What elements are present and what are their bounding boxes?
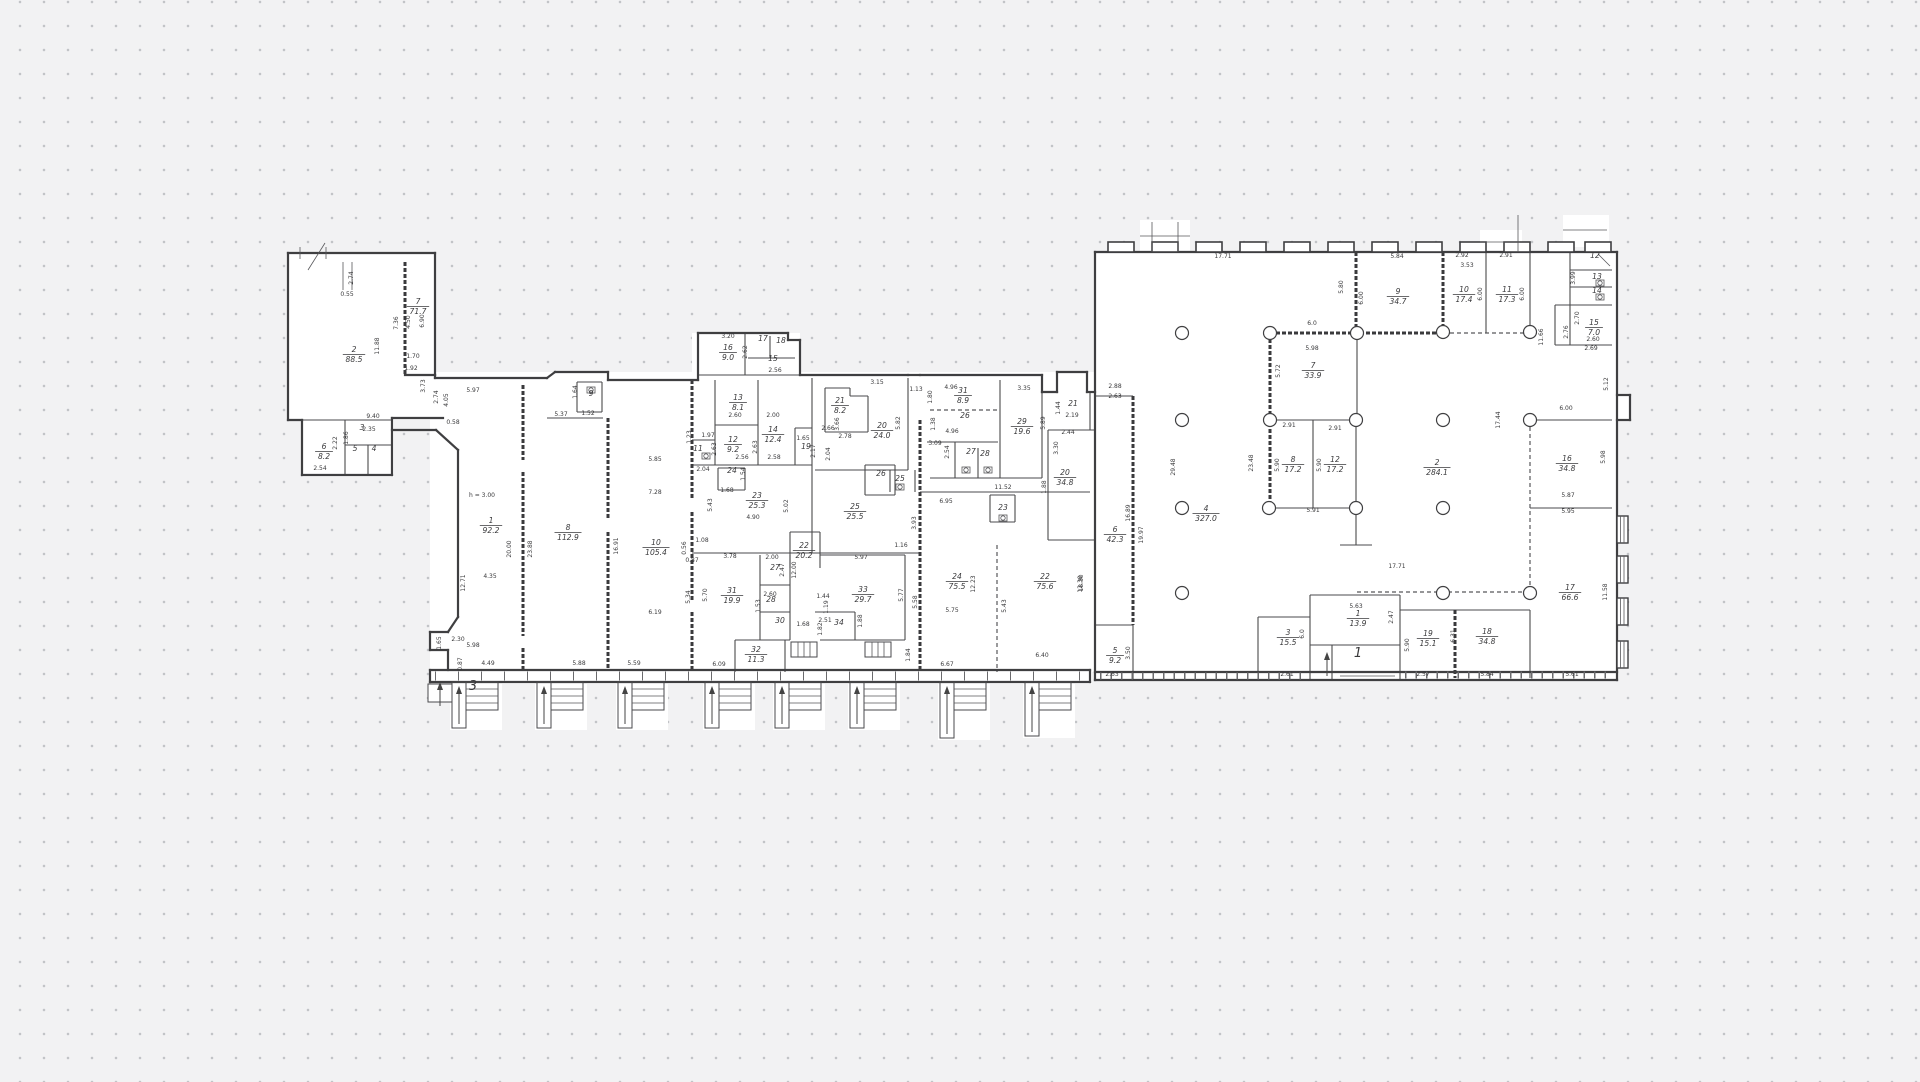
dimension-label: 5.98 bbox=[466, 642, 480, 649]
room-area: 9.2 bbox=[1109, 656, 1121, 665]
dimension-label: 1.82 bbox=[817, 622, 824, 636]
dimension-label: 4.90 bbox=[746, 514, 760, 521]
dimension-label: 17.71 bbox=[1388, 563, 1405, 570]
room-number: 16 bbox=[1562, 454, 1572, 463]
room-number: 31 bbox=[958, 386, 968, 395]
dimension-label: 1.13 bbox=[909, 386, 923, 393]
entrance-number: 3 bbox=[469, 679, 477, 694]
room-number: 22 bbox=[1040, 572, 1050, 581]
dimension-label: 2.04 bbox=[696, 466, 710, 473]
room-area: 17.4 bbox=[1456, 295, 1473, 304]
column bbox=[1350, 414, 1363, 427]
dimension-label: 5.84 bbox=[1480, 671, 1494, 678]
room-number: 15 bbox=[1589, 318, 1599, 327]
dimension-label: 3.99 bbox=[1570, 271, 1577, 285]
dimension-label: 1.86 bbox=[343, 431, 350, 445]
column bbox=[1264, 414, 1277, 427]
facade-pilaster bbox=[1504, 242, 1530, 252]
room-area: 42.3 bbox=[1107, 535, 1124, 544]
column bbox=[1437, 587, 1450, 600]
dimension-label: 1.65 bbox=[796, 435, 810, 442]
room-number: 18 bbox=[776, 336, 786, 345]
room-area: 34.8 bbox=[1559, 464, 1576, 473]
room-number: 10 bbox=[651, 538, 661, 547]
room-number: 25 bbox=[895, 474, 905, 483]
dimension-label: 4.96 bbox=[945, 428, 959, 435]
dimension-label: 1.38 bbox=[930, 417, 937, 431]
dimension-label: 1.54 bbox=[740, 467, 747, 481]
facade-pilaster bbox=[1196, 242, 1222, 252]
room-number: 6 bbox=[1113, 525, 1118, 534]
room-number: 5 bbox=[353, 444, 358, 453]
dimension-label: 1.68 bbox=[720, 487, 734, 494]
dimension-label: 2.19 bbox=[1065, 412, 1079, 419]
room-area: 8.2 bbox=[834, 406, 846, 415]
column bbox=[1524, 326, 1537, 339]
room-area: 34.7 bbox=[1390, 297, 1407, 306]
room-area: 19.9 bbox=[724, 596, 741, 605]
dimension-label: 16.89 bbox=[1125, 504, 1132, 521]
dimension-label: 20.00 bbox=[506, 540, 513, 557]
dimension-label: 2.57 bbox=[1416, 671, 1430, 678]
dimension-label: 5.82 bbox=[895, 416, 902, 430]
dimension-label: 3.20 bbox=[721, 333, 735, 340]
room-area: 75.5 bbox=[949, 582, 966, 591]
room-number: 19 bbox=[1423, 629, 1433, 638]
dimension-label: 5.43 bbox=[1001, 599, 1008, 613]
dimension-label: 5.43 bbox=[707, 498, 714, 512]
dimension-label: 2.66 bbox=[821, 425, 835, 432]
room-area: 284.1 bbox=[1426, 468, 1448, 477]
dimension-label: 18.30 bbox=[1078, 574, 1085, 591]
room-number: 12 bbox=[728, 435, 738, 444]
room-number: 9 bbox=[589, 389, 594, 398]
room-area: 29.7 bbox=[855, 595, 872, 604]
window-bay bbox=[1617, 516, 1628, 543]
stair-slab bbox=[848, 680, 900, 730]
dimension-label: 4.96 bbox=[944, 384, 958, 391]
room-number: 8 bbox=[1291, 455, 1296, 464]
dimension-label: 6.40 bbox=[1035, 652, 1049, 659]
stair-slab bbox=[535, 680, 587, 730]
dimension-label: 2.74 bbox=[433, 390, 440, 404]
facade-pilaster bbox=[1460, 242, 1486, 252]
dimension-label: 6.00 bbox=[1519, 287, 1526, 301]
dimension-label: 2.00 bbox=[765, 554, 779, 561]
facade-pilaster bbox=[1372, 242, 1398, 252]
dimension-label: 4.50 bbox=[405, 315, 412, 329]
room-number: 5 bbox=[1113, 646, 1118, 655]
room-area: 15.1 bbox=[1420, 639, 1437, 648]
facade-pilaster bbox=[1108, 242, 1134, 252]
room-area: 9.2 bbox=[727, 445, 739, 454]
dimension-label: 7.28 bbox=[648, 489, 662, 496]
dimension-label: 5.88 bbox=[572, 660, 586, 667]
dimension-label: 5.90 bbox=[1404, 638, 1411, 652]
drawing-canvas[interactable]: 0.552.747.364.506.901.701.9211.883.735.9… bbox=[0, 0, 1920, 1078]
dimension-label: 0.55 bbox=[340, 291, 354, 298]
dimension-label: 2.92 bbox=[1455, 252, 1469, 259]
dimension-label: 3.15 bbox=[870, 379, 884, 386]
dimension-label: 1.97 bbox=[701, 432, 715, 439]
room-number: 31 bbox=[727, 586, 737, 595]
dimension-label: 5.70 bbox=[702, 588, 709, 602]
room-number: 9 bbox=[1396, 287, 1401, 296]
dimension-label: 3.30 bbox=[1053, 441, 1060, 455]
room-number: 34 bbox=[834, 618, 844, 627]
dimension-label: 3.35 bbox=[1017, 385, 1031, 392]
room-number: 17 bbox=[1565, 583, 1575, 592]
room-number: 2 bbox=[352, 345, 357, 354]
window-bay bbox=[1617, 598, 1628, 625]
column bbox=[1437, 502, 1450, 515]
dimension-label: 2.04 bbox=[825, 447, 832, 461]
dimension-label: 2.63 bbox=[752, 440, 759, 454]
room-number: 27 bbox=[966, 447, 976, 456]
room-number: 12 bbox=[1590, 251, 1600, 260]
dimension-label: 2.60 bbox=[1586, 336, 1600, 343]
room-number: 10 bbox=[1459, 285, 1469, 294]
room-number: 13 bbox=[1592, 272, 1602, 281]
dimension-label: 2.69 bbox=[1584, 345, 1598, 352]
room-area: 19.6 bbox=[1014, 427, 1031, 436]
dimension-label: 3.53 bbox=[1460, 262, 1474, 269]
dimension-label: 1.44 bbox=[1055, 401, 1062, 415]
room-area: 17.2 bbox=[1327, 465, 1344, 474]
room-area: 13.9 bbox=[1350, 619, 1367, 628]
dimension-label: 6.67 bbox=[940, 661, 954, 668]
dimension-label: 3.50 bbox=[1125, 646, 1132, 660]
dimension-label: 1.44 bbox=[816, 593, 830, 600]
room-number: 21 bbox=[835, 396, 845, 405]
column bbox=[1524, 414, 1537, 427]
dimension-label: 2.63 bbox=[1105, 671, 1119, 678]
room-number: 13 bbox=[733, 393, 743, 402]
dimension-label: 3.93 bbox=[911, 516, 918, 530]
room-number: 6 bbox=[322, 442, 327, 451]
room-area: 71.7 bbox=[410, 307, 427, 316]
column bbox=[1263, 502, 1276, 515]
dimension-label: 0.87 bbox=[685, 557, 699, 564]
room-area: 92.2 bbox=[483, 526, 500, 535]
room-area: 8.9 bbox=[957, 396, 969, 405]
dimension-label: 2.54 bbox=[944, 445, 951, 459]
room-area: 34.8 bbox=[1479, 637, 1496, 646]
dimension-label: 0.87 bbox=[457, 657, 464, 671]
dimension-label: 12.71 bbox=[460, 574, 467, 591]
room-area: 24.0 bbox=[874, 431, 891, 440]
facade-pilaster bbox=[1548, 242, 1574, 252]
dimension-label: 11.88 bbox=[374, 337, 381, 354]
dimension-label: 5.91 bbox=[1306, 507, 1320, 514]
dimension-label: 1.88 bbox=[857, 614, 864, 628]
dimension-label: 12.23 bbox=[970, 575, 977, 592]
stair-slab bbox=[773, 680, 825, 730]
room-number: 11 bbox=[693, 444, 703, 453]
dimension-label: 5.84 bbox=[1390, 253, 1404, 260]
room-area: 20.2 bbox=[796, 551, 813, 560]
room-number: 18 bbox=[1482, 627, 1492, 636]
dimension-label: 6.95 bbox=[939, 498, 953, 505]
room-number: 4 bbox=[1204, 504, 1209, 513]
room-number: 1 bbox=[489, 516, 494, 525]
dimension-label: 2.47 bbox=[779, 563, 786, 577]
room-number: 8 bbox=[566, 523, 571, 532]
dimension-label: 3.73 bbox=[420, 379, 427, 393]
column bbox=[1176, 502, 1189, 515]
dimension-label: 5.34 bbox=[685, 590, 692, 604]
room-number: 1 bbox=[1356, 609, 1361, 618]
dimension-label: 5.12 bbox=[1603, 377, 1610, 391]
dimension-label: 2.47 bbox=[1388, 610, 1395, 624]
dimension-label: 11.58 bbox=[1602, 583, 1609, 600]
room-number: 2 bbox=[1435, 458, 1440, 467]
building-footprint bbox=[1617, 395, 1630, 420]
room-area: 25.5 bbox=[847, 512, 864, 521]
room-number: 32 bbox=[751, 645, 761, 654]
room-number: 14 bbox=[768, 425, 778, 434]
room-area: 7.0 bbox=[1588, 328, 1600, 337]
dimension-label: 2.88 bbox=[1108, 383, 1122, 390]
column bbox=[1176, 414, 1189, 427]
room-area: 8.2 bbox=[318, 452, 330, 461]
dimension-label: 3.66 bbox=[834, 417, 841, 431]
floor-plan-svg: 0.552.747.364.506.901.701.9211.883.735.9… bbox=[0, 0, 1920, 1078]
dimension-label: 16.91 bbox=[613, 537, 620, 554]
dimension-label: 6.09 bbox=[712, 661, 726, 668]
dimension-label: 5.85 bbox=[648, 456, 662, 463]
dimension-label: 5.02 bbox=[783, 499, 790, 513]
dimension-label: 23.48 bbox=[1248, 454, 1255, 471]
dimension-label: 2.91 bbox=[1282, 422, 1296, 429]
dimension-label: 6.90 bbox=[419, 314, 426, 328]
dimension-label: 5.59 bbox=[627, 660, 641, 667]
dimension-label: 5.98 bbox=[1600, 450, 1607, 464]
column bbox=[1524, 587, 1537, 600]
dimension-label: 1.65 bbox=[436, 636, 443, 650]
room-number: 27 bbox=[770, 563, 780, 572]
room-number: 17 bbox=[758, 334, 768, 343]
dimension-label: 6.0 bbox=[1307, 320, 1317, 327]
room-number: 12 bbox=[1330, 455, 1340, 464]
dimension-label: 11.66 bbox=[1538, 328, 1545, 345]
dimension-label: 2.30 bbox=[451, 636, 465, 643]
dimension-label: 29.48 bbox=[1170, 458, 1177, 475]
room-number: 20 bbox=[877, 421, 887, 430]
room-number: 24 bbox=[952, 572, 962, 581]
room-number: 20 bbox=[1060, 468, 1070, 477]
dimension-label: 1.88 bbox=[1041, 480, 1048, 494]
dimension-label: 2.17 bbox=[810, 444, 817, 458]
dimension-label: 12.00 bbox=[791, 561, 798, 578]
room-area: 33.9 bbox=[1305, 371, 1322, 380]
dimension-label: 2.00 bbox=[766, 412, 780, 419]
room-number: 29 bbox=[1017, 417, 1027, 426]
dimension-label: 0.56 bbox=[681, 541, 688, 555]
dimension-label: 5.90 bbox=[1316, 458, 1323, 472]
room-area: 9.0 bbox=[722, 353, 734, 362]
dimension-label: 1.92 bbox=[404, 365, 418, 372]
dimension-label: 5.61 bbox=[1565, 671, 1579, 678]
dimension-label: 2.70 bbox=[1574, 311, 1581, 325]
dimension-label: 2.61 bbox=[1280, 671, 1294, 678]
dimension-label: 6.00 bbox=[1559, 405, 1573, 412]
entrance-number: 1 bbox=[1354, 646, 1362, 661]
dimension-label: 1.68 bbox=[796, 621, 810, 628]
room-number: 4 bbox=[372, 444, 377, 453]
dimension-label: 2.76 bbox=[1563, 325, 1570, 339]
room-area: 25.3 bbox=[749, 501, 766, 510]
dimension-label: 5.72 bbox=[1275, 364, 1282, 378]
dimension-label: 19.97 bbox=[1138, 526, 1145, 543]
dimension-label: 2.60 bbox=[728, 412, 742, 419]
dimension-label: 3.09 bbox=[928, 440, 942, 447]
dimension-label: 23.88 bbox=[527, 540, 534, 557]
dimension-label: 6.31 bbox=[1450, 629, 1457, 643]
room-number: 3 bbox=[1286, 628, 1291, 637]
facade-pilaster bbox=[1284, 242, 1310, 252]
room-number: 23 bbox=[752, 491, 762, 500]
dimension-label: 2.62 bbox=[742, 345, 749, 359]
dimension-label: 11.52 bbox=[994, 484, 1011, 491]
window-bay bbox=[1617, 556, 1628, 583]
stair-slab bbox=[616, 680, 668, 730]
dimension-label: 5.80 bbox=[1338, 280, 1345, 294]
dimension-label: 6.00 bbox=[1477, 287, 1484, 301]
dimension-label: 4.05 bbox=[443, 393, 450, 407]
column bbox=[1437, 326, 1450, 339]
dimension-label: 5.58 bbox=[912, 595, 919, 609]
room-area: 8.1 bbox=[732, 403, 744, 412]
dimension-label: 5.98 bbox=[1305, 345, 1319, 352]
window-bay bbox=[1617, 641, 1628, 668]
room-number: 3 bbox=[360, 423, 365, 432]
room-number: 26 bbox=[960, 411, 970, 420]
dimension-label: 2.91 bbox=[1328, 425, 1342, 432]
dimension-label: 4.49 bbox=[481, 660, 495, 667]
room-area: 112.9 bbox=[557, 533, 579, 542]
room-number: 24 bbox=[727, 466, 737, 475]
dimension-label: 5.95 bbox=[1561, 508, 1575, 515]
room-area: 105.4 bbox=[645, 548, 667, 557]
dimension-label: 1.19 bbox=[823, 600, 830, 614]
dimension-label: 2.58 bbox=[767, 454, 781, 461]
room-number: 11 bbox=[1502, 285, 1512, 294]
room-number: 28 bbox=[766, 595, 776, 604]
dimension-label: 0.58 bbox=[446, 419, 460, 426]
column bbox=[1437, 414, 1450, 427]
room-area: 12.4 bbox=[765, 435, 782, 444]
room-number: 19 bbox=[801, 442, 811, 451]
stair-slab bbox=[703, 680, 755, 730]
facade-pilaster bbox=[1152, 242, 1178, 252]
dimension-label: 5.87 bbox=[1561, 492, 1575, 499]
column bbox=[1350, 502, 1363, 515]
dimension-label: 2.63 bbox=[1108, 393, 1122, 400]
room-area: 327.0 bbox=[1195, 514, 1217, 523]
dimension-label: 1.08 bbox=[695, 537, 709, 544]
dimension-label: 2.44 bbox=[1061, 429, 1075, 436]
dimension-label: 1.64 bbox=[572, 385, 579, 399]
dimension-label: 1.16 bbox=[894, 542, 908, 549]
room-number: 21 bbox=[1068, 399, 1078, 408]
dimension-label: 1.53 bbox=[755, 599, 762, 613]
room-number: 14 bbox=[1592, 286, 1602, 295]
dimension-label: 2.54 bbox=[313, 465, 327, 472]
column bbox=[1176, 587, 1189, 600]
dimension-label: 5.75 bbox=[945, 607, 959, 614]
room-area: 11.3 bbox=[748, 655, 765, 664]
dimension-label: 2.91 bbox=[1499, 252, 1513, 259]
room-area: 88.5 bbox=[346, 355, 363, 364]
room-area: 66.6 bbox=[1562, 593, 1579, 602]
room-number: 16 bbox=[723, 343, 733, 352]
room-area: 15.5 bbox=[1280, 638, 1297, 647]
room-number: 30 bbox=[775, 616, 785, 625]
room-number: 22 bbox=[799, 541, 809, 550]
column bbox=[1176, 327, 1189, 340]
room-area: 17.2 bbox=[1285, 465, 1302, 474]
dimension-label: 6.19 bbox=[648, 609, 662, 616]
dimension-label: 2.56 bbox=[768, 367, 782, 374]
room-area: 75.6 bbox=[1037, 582, 1054, 591]
dimension-label: 2.22 bbox=[332, 436, 339, 450]
room-area: 34.8 bbox=[1057, 478, 1074, 487]
dimension-label: 2.78 bbox=[838, 433, 852, 440]
room-number: 28 bbox=[980, 449, 990, 458]
dimension-label: 2.56 bbox=[735, 454, 749, 461]
facade-pilaster bbox=[1416, 242, 1442, 252]
room-number: 7 bbox=[416, 297, 421, 306]
room-area: 17.3 bbox=[1499, 295, 1516, 304]
room-number: 25 bbox=[850, 502, 860, 511]
dimension-label: 17.44 bbox=[1495, 411, 1502, 428]
dimension-label: 9.40 bbox=[366, 413, 380, 420]
dimension-label: 5.90 bbox=[1274, 458, 1281, 472]
dimension-label: 2.63 bbox=[711, 442, 718, 456]
dimension-label: 4.35 bbox=[483, 573, 497, 580]
dimension-label: 17.71 bbox=[1214, 253, 1231, 260]
facade-pilaster bbox=[1328, 242, 1354, 252]
room-number: 15 bbox=[768, 354, 778, 363]
room-number: 33 bbox=[858, 585, 868, 594]
room-number: 23 bbox=[998, 503, 1008, 512]
dimension-label: 6.0 bbox=[1299, 629, 1306, 639]
dimension-label: 1.23 bbox=[686, 430, 693, 444]
room-number: 7 bbox=[1311, 361, 1316, 370]
dimension-label: 7.36 bbox=[393, 316, 400, 330]
dimension-label: 3.78 bbox=[723, 553, 737, 560]
dimension-label: 1.84 bbox=[905, 648, 912, 662]
dimension-label: 6.00 bbox=[1358, 291, 1365, 305]
dimension-label: 1.80 bbox=[927, 390, 934, 404]
dimension-label: 5.89 bbox=[1040, 416, 1047, 430]
dimension-label: 5.77 bbox=[898, 588, 905, 602]
dimension-label: 5.37 bbox=[554, 411, 568, 418]
dimension-label: 1.70 bbox=[406, 353, 420, 360]
dimension-label: 2.74 bbox=[348, 271, 355, 285]
dimension-label: 5.97 bbox=[854, 554, 868, 561]
column bbox=[1264, 327, 1277, 340]
dimension-label: h = 3.00 bbox=[469, 492, 495, 499]
column bbox=[1351, 327, 1364, 340]
room-number: 26 bbox=[876, 469, 886, 478]
facade-pilaster bbox=[1240, 242, 1266, 252]
dimension-label: 1.52 bbox=[581, 410, 595, 417]
dimension-label: 5.97 bbox=[466, 387, 480, 394]
building-footprint bbox=[288, 253, 435, 420]
